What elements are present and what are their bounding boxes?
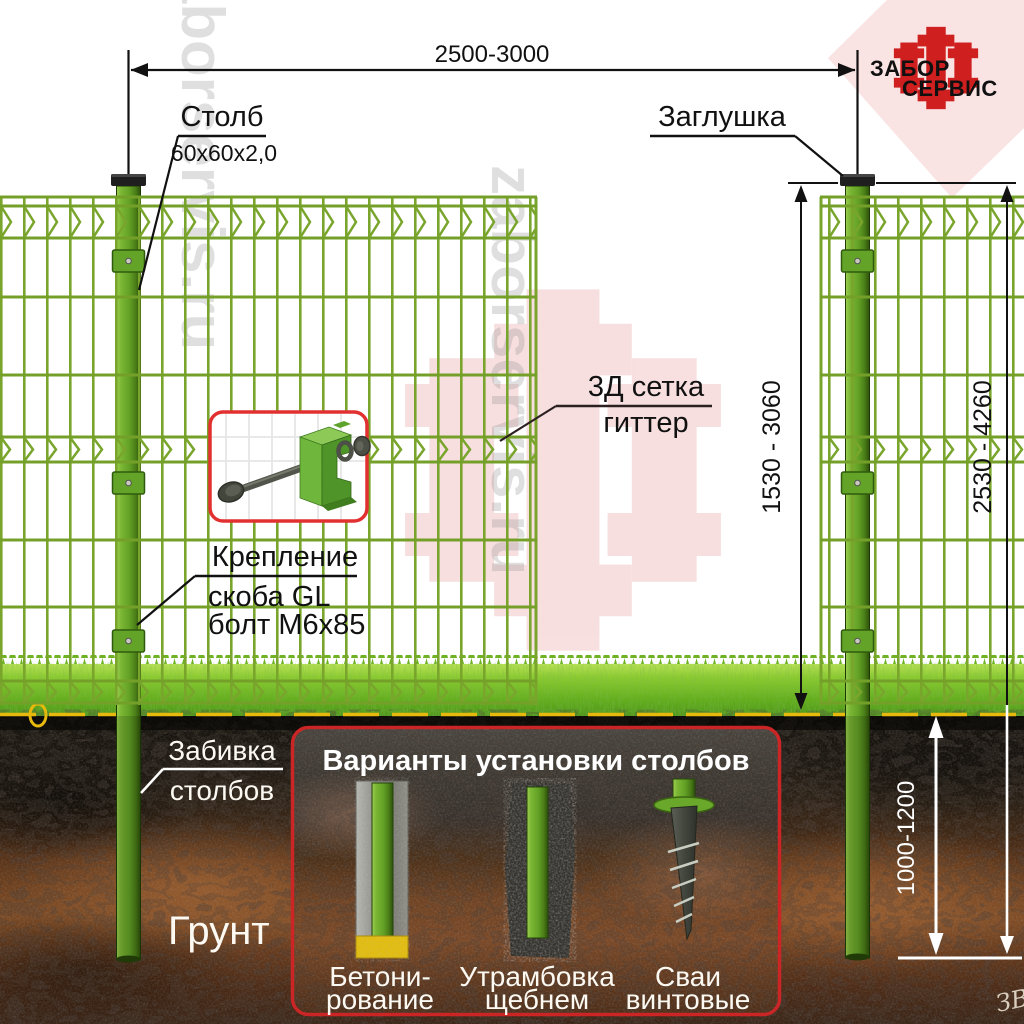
clamp	[113, 630, 145, 652]
mesh-label-line2: гиттер	[603, 407, 688, 439]
panel-height-value: 1530 - 3060	[758, 380, 786, 513]
right-post-cap	[840, 174, 875, 186]
mount-label-line2: болт М6х85	[208, 609, 365, 641]
clamp	[113, 472, 145, 494]
nut-icon	[354, 437, 370, 456]
post-label-size: 60x60x2,0	[171, 140, 277, 166]
logo-text-line2: СЕРВИС	[902, 76, 998, 101]
clamp	[842, 630, 874, 652]
fence-installation-diagram: zaborservis.ru zaborservis.ru zaborservi…	[0, 0, 1024, 1024]
bracket-inset	[210, 412, 370, 521]
option-screw-label-2: винтовые	[626, 984, 751, 1015]
total-height-value: 2530 - 4260	[969, 380, 997, 513]
span-dimension-value: 2500-3000	[435, 41, 550, 68]
clamp	[842, 472, 874, 494]
options-inset-title: Варианты установки столбов	[322, 745, 749, 777]
signature-scribble: ЗВ	[993, 984, 1024, 1018]
mesh-label-line1: 3Д сетка	[588, 371, 705, 403]
depth-value: 1000-1200	[893, 781, 920, 896]
mount-label-title: Крепление	[212, 541, 358, 573]
clamp	[113, 250, 145, 272]
post-label-title: Столб	[181, 101, 264, 133]
clamp	[842, 250, 874, 272]
left-post-cap	[111, 174, 146, 186]
ground-label: Грунт	[168, 909, 270, 953]
option-concrete	[356, 781, 408, 958]
driving-label-line2: столбов	[170, 775, 274, 806]
options-inset: Варианты установки столбов Бетони- рован…	[260, 728, 810, 1016]
option-gravel	[505, 782, 575, 958]
cap-label-text: Заглушка	[658, 101, 787, 133]
option-labels: Бетони- рование Утрамбовка щебнем Сваи в…	[326, 961, 750, 1015]
driving-label-line1: Забивка	[168, 735, 276, 766]
option-gravel-label-2: щебнем	[485, 984, 589, 1015]
option-concrete-label-2: рование	[326, 984, 434, 1015]
